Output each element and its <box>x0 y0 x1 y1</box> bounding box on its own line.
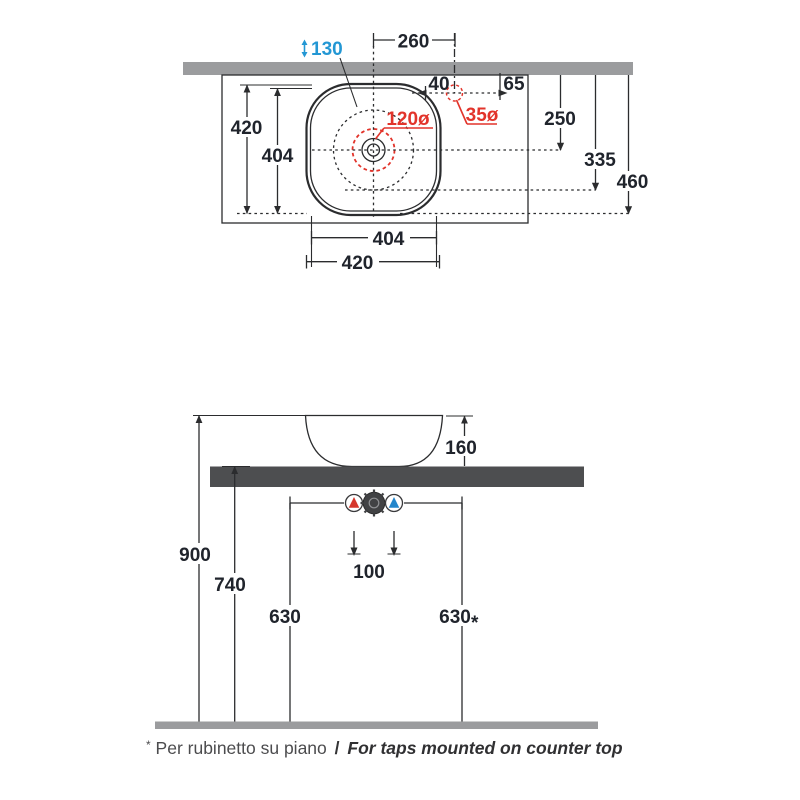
dim-130-label: 130 <box>311 39 343 60</box>
dim-460-label: 460 <box>617 172 649 193</box>
basin-outer-rim <box>307 84 441 215</box>
dim-65-label: 65 <box>503 74 525 95</box>
dim-420-bottom-label: 420 <box>342 253 374 274</box>
dim-120-dia: 120ø <box>376 109 434 139</box>
dim-250-label: 250 <box>544 109 576 130</box>
dim-335-label: 335 <box>584 150 616 171</box>
dim-100-label: 100 <box>353 562 385 583</box>
cold-water-icon <box>386 495 403 512</box>
dim-250: 250 <box>541 75 580 151</box>
updown-arrow-icon <box>302 40 308 58</box>
dim-630-left: 630 <box>264 503 306 722</box>
plan-view: 260 130 40 65 250 <box>183 31 653 274</box>
dim-630-right: 630 * <box>432 503 490 722</box>
footnote-asterisk: * <box>146 738 151 752</box>
dim-160: 160 <box>443 416 480 467</box>
dim-120-label: 120ø <box>386 109 430 130</box>
footnote: * Per rubinetto su piano / For taps moun… <box>146 738 626 759</box>
dim-740-label: 740 <box>214 575 246 596</box>
dim-40-label: 40 <box>428 74 449 95</box>
dim-420-bottom: 420 <box>307 252 440 274</box>
dim-420-left-label: 420 <box>231 118 263 139</box>
floor-bar <box>155 722 598 730</box>
hot-water-icon <box>346 495 363 512</box>
drain-valve-icon <box>361 490 388 517</box>
basin-dimension-drawing: 260 130 40 65 250 <box>0 0 800 800</box>
dim-460: 460 <box>612 75 653 215</box>
dim-900: 900 <box>175 415 305 722</box>
dim-630-right-label: 630 <box>439 607 471 628</box>
footnote-english: For taps mounted on counter top <box>347 738 622 758</box>
plan-countertop-bar <box>183 62 633 75</box>
dim-404-left: 404 <box>257 88 312 214</box>
dim-404-bottom-label: 404 <box>373 229 405 250</box>
technical-drawing-page: 260 130 40 65 250 <box>0 0 800 800</box>
dim-160-label: 160 <box>445 438 477 459</box>
dim-35-dia: 35ø <box>457 100 499 126</box>
dim-900-label: 900 <box>179 545 211 566</box>
dim-404-left-label: 404 <box>262 146 294 167</box>
dim-100: 100 <box>348 531 401 583</box>
side-view: 160 900 740 <box>155 415 598 729</box>
dim-630-left-label: 630 <box>269 607 301 628</box>
dim-35-label: 35ø <box>466 105 499 126</box>
side-counter-slab <box>210 467 584 488</box>
dim-260: 260 <box>374 31 456 53</box>
dim-260-label: 260 <box>398 32 430 53</box>
dim-40-65: 40 65 <box>418 73 525 100</box>
footnote-italian: Per rubinetto su piano <box>156 738 327 758</box>
footnote-separator: / <box>335 738 340 758</box>
dim-740: 740 <box>210 466 251 722</box>
basin-bowl-profile <box>306 416 443 467</box>
dim-630-right-star: * <box>471 613 479 634</box>
